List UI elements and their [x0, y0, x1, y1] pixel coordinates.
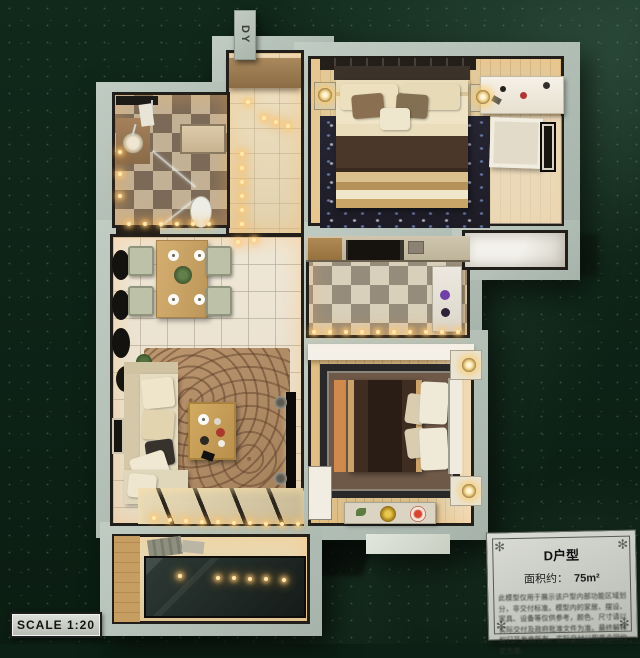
ceiling-light — [264, 577, 268, 581]
decor-plate-red — [410, 506, 426, 522]
balcony-mat — [181, 540, 204, 554]
bedroom-door — [308, 466, 332, 520]
pillow — [419, 427, 449, 470]
ceiling-light — [168, 518, 172, 522]
ceiling-light — [159, 222, 163, 226]
ceiling-light — [456, 330, 460, 334]
ceiling-light — [240, 180, 244, 184]
second-bed-headboard — [448, 378, 462, 474]
ceiling-light — [207, 222, 211, 226]
wall-decor-oval — [112, 328, 130, 358]
ceiling-light — [152, 516, 156, 520]
sofa-armrest — [124, 362, 178, 374]
ceiling-light — [216, 576, 220, 580]
dining-chair — [206, 246, 232, 276]
tv-screen — [286, 392, 296, 488]
utility-room-floor — [462, 230, 568, 270]
ceiling-light — [200, 520, 204, 524]
dining-chair — [206, 286, 232, 316]
bottom-ledge — [366, 534, 450, 554]
dinner-plate — [168, 250, 179, 261]
ceiling-light — [296, 522, 300, 526]
ceiling-light — [232, 576, 236, 580]
ceiling-light — [240, 166, 244, 170]
placard-area-line: 面积约：75m² — [488, 568, 636, 587]
cup — [214, 418, 221, 425]
dining-chair — [128, 246, 154, 276]
pillow — [419, 381, 449, 424]
unit-tag: DY — [234, 10, 256, 60]
ceiling-light — [118, 150, 122, 154]
ceiling-light — [344, 330, 348, 334]
cutting-board — [308, 238, 342, 260]
ceiling-light — [252, 238, 256, 242]
ceiling-light — [143, 222, 147, 226]
ceiling-light — [240, 222, 244, 226]
dark-plate — [200, 436, 209, 445]
decor-leaf — [356, 508, 366, 516]
unit-tag-label: DY — [239, 25, 251, 44]
ceiling-light — [236, 240, 240, 244]
desk-item — [500, 86, 506, 92]
ceiling-light — [282, 578, 286, 582]
ceiling-light — [376, 330, 380, 334]
ceiling-light — [360, 330, 364, 334]
fridge-decor — [440, 290, 450, 300]
ceiling-light — [246, 100, 250, 104]
ceiling-light — [312, 330, 316, 334]
scale-label: SCALE 1:20 — [10, 612, 102, 638]
ceiling-light — [280, 522, 284, 526]
vanity-chair — [489, 117, 543, 169]
ceiling-light — [424, 330, 428, 334]
coffee-table-plate — [198, 414, 209, 425]
desk-item — [520, 92, 527, 99]
sofa-cushion — [141, 409, 175, 441]
ceiling-light — [262, 116, 266, 120]
balcony-wood-strip — [114, 536, 140, 622]
coffee-table — [188, 402, 236, 460]
cushion — [380, 108, 410, 130]
speaker — [274, 472, 287, 485]
cup — [218, 440, 225, 447]
ceiling-light — [240, 208, 244, 212]
placard-disclaimer: 此模型仅用于展示该户型内部功能区域划分，非交付标准。模型内的家居、摆设、家具、设… — [498, 592, 627, 658]
dining-door-slot — [116, 226, 160, 235]
dinner-plate — [168, 294, 179, 305]
ceiling-light — [264, 522, 268, 526]
placard-area-label: 面积约： — [524, 573, 568, 586]
master-headboard — [334, 66, 470, 80]
ceiling-light — [118, 194, 122, 198]
ceiling-light — [240, 152, 244, 156]
bedside-lamp — [462, 484, 476, 498]
ceiling-light — [440, 330, 444, 334]
ceiling-light — [232, 521, 236, 525]
placard-unit-title: D户型 — [487, 543, 635, 565]
ceiling-light — [274, 120, 278, 124]
wall-picture-frame — [112, 418, 124, 454]
ceiling-light — [328, 330, 332, 334]
scale-label-text: SCALE 1:20 — [17, 618, 95, 632]
table-plant — [174, 266, 192, 284]
info-placard: ✻ ✻ ✻ ✻ D户型 面积约：75m² 此模型仅用于展示该户型内部功能区域划分… — [486, 529, 638, 640]
bed-end-bench — [334, 380, 346, 472]
ceiling-light — [286, 124, 290, 128]
bathtub-counter — [180, 124, 226, 154]
ceiling-light — [248, 521, 252, 525]
decor-plate-gold — [380, 506, 396, 522]
ceiling-light — [392, 330, 396, 334]
placard-area-value: 75m² — [574, 572, 600, 585]
ceiling-light — [248, 577, 252, 581]
entry-wardrobe — [229, 58, 301, 88]
ceiling-light — [118, 172, 122, 176]
ceiling-light — [175, 222, 179, 226]
red-bowl — [216, 428, 225, 437]
ceiling-light — [184, 519, 188, 523]
wall-picture-frame — [540, 122, 556, 172]
desk-item — [543, 82, 550, 89]
sofa-cushion — [141, 376, 176, 409]
cooktop — [346, 240, 404, 260]
bedside-lamp — [318, 88, 332, 102]
dining-chair — [128, 286, 154, 316]
bedside-lamp — [476, 90, 490, 104]
kitchen-sink — [408, 241, 424, 254]
sliding-glass-door — [138, 488, 304, 524]
ceiling-light — [408, 330, 412, 334]
dinner-plate — [194, 294, 205, 305]
ceiling-light — [216, 520, 220, 524]
speaker — [274, 396, 287, 409]
ceiling-light — [127, 222, 131, 226]
dinner-plate — [194, 250, 205, 261]
ceiling-light — [240, 194, 244, 198]
bedside-lamp — [462, 358, 476, 372]
fridge-decor — [441, 308, 450, 317]
balcony-glass-panel — [144, 556, 306, 618]
ceiling-light — [191, 222, 195, 226]
ceiling-light — [178, 574, 182, 578]
